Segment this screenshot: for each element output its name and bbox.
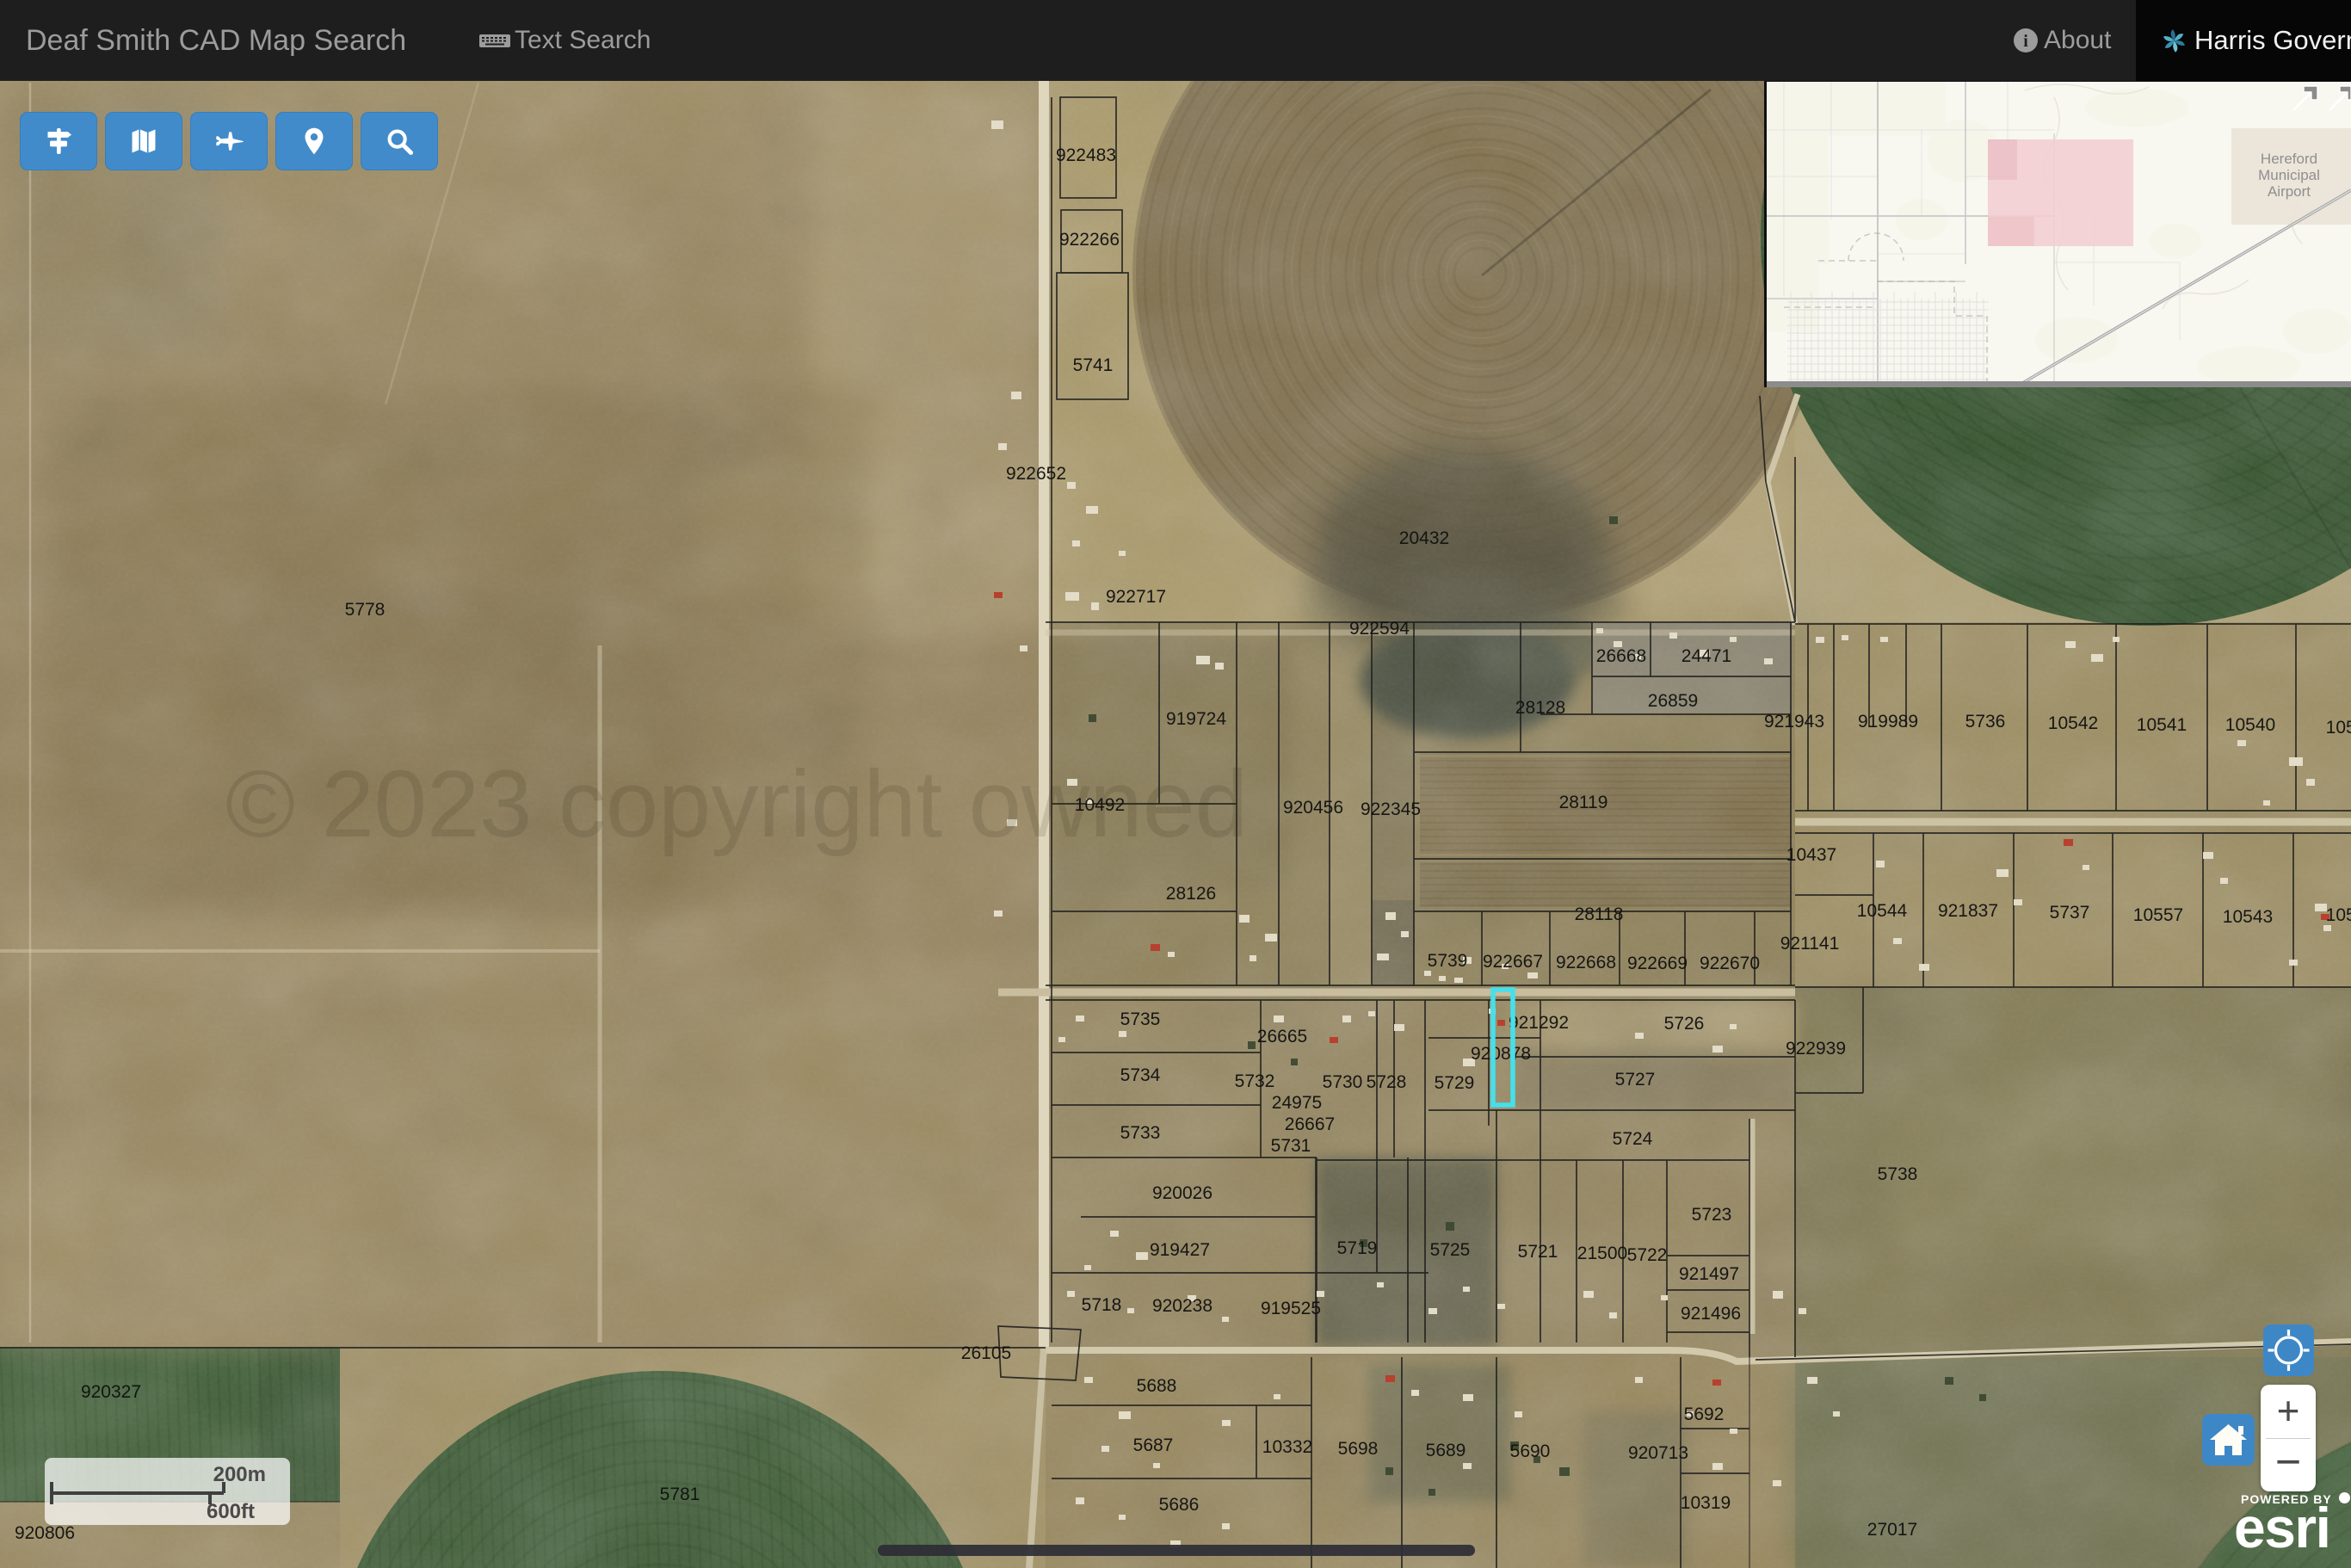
svg-text:28119: 28119 bbox=[1559, 793, 1608, 812]
svg-text:26667: 26667 bbox=[1285, 1114, 1335, 1134]
svg-text:Airport: Airport bbox=[2268, 183, 2311, 200]
svg-text:922345: 922345 bbox=[1361, 799, 1421, 819]
svg-text:922669: 922669 bbox=[1627, 954, 1688, 973]
svg-text:10541: 10541 bbox=[2137, 715, 2187, 735]
svg-text:26668: 26668 bbox=[1596, 646, 1646, 666]
svg-text:28128: 28128 bbox=[1515, 698, 1565, 718]
svg-text:920878: 920878 bbox=[1471, 1044, 1531, 1064]
svg-text:26665: 26665 bbox=[1257, 1027, 1307, 1046]
svg-text:5722: 5722 bbox=[1627, 1245, 1668, 1265]
svg-text:10319: 10319 bbox=[1681, 1493, 1731, 1513]
svg-text:921943: 921943 bbox=[1764, 712, 1824, 732]
svg-text:920026: 920026 bbox=[1152, 1183, 1213, 1203]
svg-text:919989: 919989 bbox=[1858, 712, 1918, 732]
svg-text:Hereford: Hereford bbox=[2261, 151, 2317, 167]
svg-text:5781: 5781 bbox=[660, 1485, 700, 1504]
svg-text:5732: 5732 bbox=[1235, 1071, 1275, 1091]
svg-text:26859: 26859 bbox=[1648, 691, 1698, 711]
svg-text:200m: 200m bbox=[213, 1463, 266, 1486]
svg-text:5733: 5733 bbox=[1120, 1123, 1161, 1143]
svg-text:919525: 919525 bbox=[1261, 1299, 1321, 1318]
svg-text:920327: 920327 bbox=[81, 1382, 141, 1402]
svg-text:919427: 919427 bbox=[1150, 1240, 1210, 1260]
svg-text:600ft: 600ft bbox=[207, 1500, 255, 1523]
svg-text:920806: 920806 bbox=[15, 1523, 75, 1543]
svg-text:5719: 5719 bbox=[1337, 1238, 1378, 1258]
svg-text:10437: 10437 bbox=[1786, 845, 1836, 865]
svg-text:922670: 922670 bbox=[1700, 954, 1760, 973]
svg-text:5734: 5734 bbox=[1120, 1065, 1161, 1085]
svg-text:5739: 5739 bbox=[1428, 951, 1468, 971]
svg-text:5736: 5736 bbox=[1965, 712, 2006, 732]
svg-text:5724: 5724 bbox=[1613, 1129, 1653, 1149]
svg-text:10332: 10332 bbox=[1262, 1437, 1312, 1457]
svg-text:5698: 5698 bbox=[1338, 1439, 1379, 1459]
svg-text:5721: 5721 bbox=[1518, 1242, 1558, 1262]
svg-text:922652: 922652 bbox=[1006, 464, 1066, 484]
svg-text:922668: 922668 bbox=[1556, 953, 1616, 972]
svg-text:24471: 24471 bbox=[1681, 646, 1731, 666]
svg-text:921496: 921496 bbox=[1681, 1304, 1741, 1324]
svg-text:5735: 5735 bbox=[1120, 1009, 1161, 1029]
svg-text:5729: 5729 bbox=[1435, 1073, 1475, 1093]
svg-text:27017: 27017 bbox=[1867, 1520, 1917, 1540]
svg-text:28126: 28126 bbox=[1166, 884, 1216, 904]
svg-text:5730: 5730 bbox=[1323, 1072, 1363, 1092]
svg-text:5692: 5692 bbox=[1684, 1404, 1725, 1424]
svg-text:921497: 921497 bbox=[1679, 1264, 1739, 1284]
svg-text:922667: 922667 bbox=[1483, 952, 1543, 972]
svg-text:10557: 10557 bbox=[2133, 905, 2183, 925]
svg-text:919724: 919724 bbox=[1166, 709, 1226, 729]
svg-text:20432: 20432 bbox=[1399, 528, 1449, 548]
svg-text:922939: 922939 bbox=[1786, 1039, 1846, 1059]
svg-text:5726: 5726 bbox=[1664, 1014, 1705, 1034]
svg-text:5723: 5723 bbox=[1692, 1205, 1732, 1225]
svg-text:921141: 921141 bbox=[1780, 934, 1840, 954]
svg-text:920713: 920713 bbox=[1628, 1443, 1688, 1463]
svg-text:920238: 920238 bbox=[1152, 1296, 1213, 1316]
svg-text:1053: 1053 bbox=[2326, 905, 2351, 925]
svg-text:21500: 21500 bbox=[1577, 1244, 1627, 1263]
svg-text:922717: 922717 bbox=[1106, 587, 1166, 607]
svg-text:24975: 24975 bbox=[1272, 1093, 1322, 1113]
svg-text:10540: 10540 bbox=[2225, 715, 2275, 735]
svg-text:5690: 5690 bbox=[1510, 1441, 1551, 1461]
svg-text:5718: 5718 bbox=[1082, 1295, 1122, 1315]
svg-text:5725: 5725 bbox=[1430, 1240, 1471, 1260]
svg-text:921292: 921292 bbox=[1509, 1013, 1569, 1033]
svg-text:922266: 922266 bbox=[1059, 230, 1120, 250]
svg-text:5737: 5737 bbox=[2050, 903, 2090, 923]
svg-text:5688: 5688 bbox=[1137, 1376, 1177, 1396]
svg-text:28118: 28118 bbox=[1575, 904, 1624, 924]
svg-text:920456: 920456 bbox=[1283, 798, 1343, 818]
svg-text:10543: 10543 bbox=[2223, 907, 2273, 927]
svg-text:5778: 5778 bbox=[345, 600, 386, 620]
svg-text:10542: 10542 bbox=[2048, 713, 2098, 733]
svg-text:26105: 26105 bbox=[961, 1343, 1011, 1363]
svg-text:5687: 5687 bbox=[1133, 1435, 1174, 1455]
svg-text:5728: 5728 bbox=[1367, 1072, 1407, 1092]
svg-text:10544: 10544 bbox=[1857, 901, 1908, 921]
svg-text:Municipal: Municipal bbox=[2258, 167, 2320, 183]
svg-text:5689: 5689 bbox=[1426, 1441, 1466, 1460]
svg-text:921837: 921837 bbox=[1938, 901, 1998, 921]
svg-text:5727: 5727 bbox=[1615, 1070, 1656, 1090]
svg-text:5686: 5686 bbox=[1159, 1495, 1200, 1515]
svg-text:i: i bbox=[2023, 32, 2028, 51]
svg-text:5738: 5738 bbox=[1878, 1164, 1918, 1184]
svg-text:5741: 5741 bbox=[1073, 355, 1114, 375]
svg-text:922594: 922594 bbox=[1349, 619, 1410, 639]
svg-text:5731: 5731 bbox=[1271, 1136, 1311, 1156]
svg-text:922483: 922483 bbox=[1056, 145, 1116, 165]
svg-text:10492: 10492 bbox=[1075, 795, 1125, 815]
svg-text:1053: 1053 bbox=[2326, 718, 2351, 738]
